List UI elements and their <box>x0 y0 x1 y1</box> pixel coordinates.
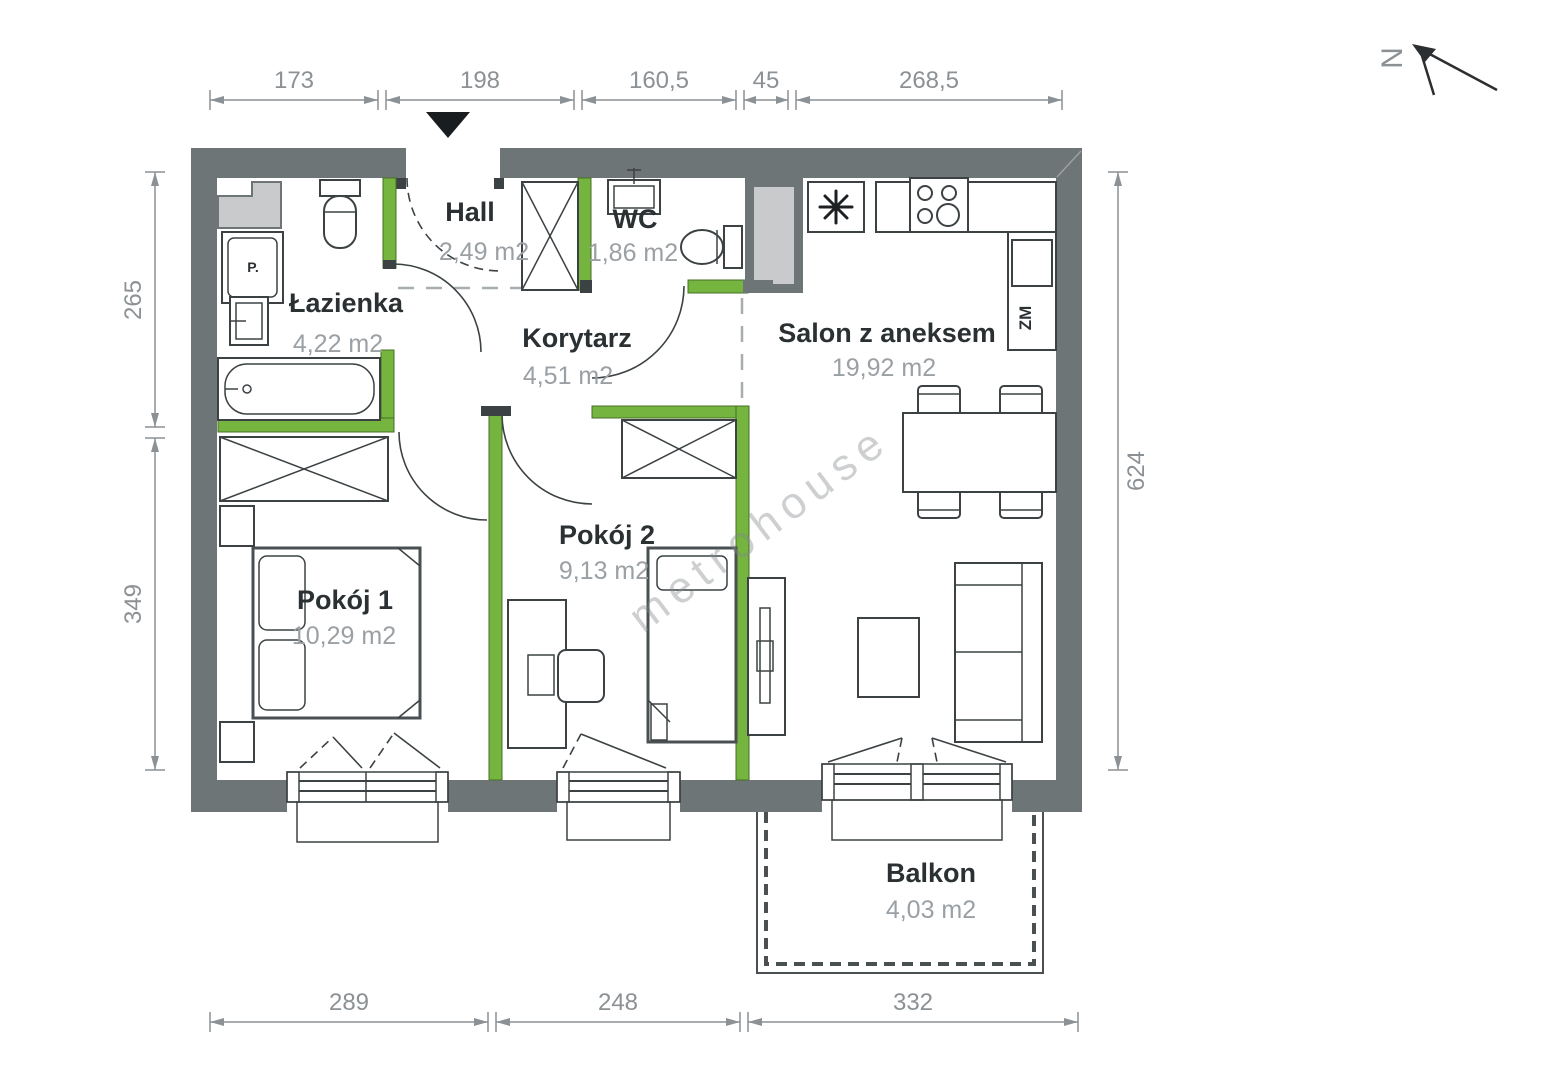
bathroom-door-swing <box>393 264 481 352</box>
room-area-korytarz: 4,51 m2 <box>523 362 613 390</box>
floor-plan: P. <box>0 0 1556 1080</box>
dim-segment: 332 <box>748 989 1078 1032</box>
kitchen-appliance <box>1012 240 1052 286</box>
room2-desk <box>508 600 604 748</box>
dim-label: 198 <box>460 67 500 94</box>
dim-segment: 624 <box>1108 172 1150 770</box>
corridor-wardrobe <box>522 182 578 290</box>
dim-label: 173 <box>274 67 314 94</box>
sofa <box>955 563 1042 742</box>
room-area-hall: 2,49 m2 <box>439 238 529 266</box>
dim-label: 624 <box>1123 451 1150 491</box>
dim-label: 160,5 <box>629 67 689 94</box>
room-name-balkon: Balkon <box>886 858 976 888</box>
room-name-wc: WC <box>613 204 658 234</box>
washer-label: P. <box>247 259 258 275</box>
desk-chair <box>558 650 604 702</box>
utility-shaft <box>743 178 803 293</box>
dim-label: 45 <box>753 67 780 94</box>
nightstand <box>220 722 254 762</box>
room-area-balkon: 4,03 m2 <box>886 896 976 924</box>
dim-segment: 289 <box>210 989 488 1032</box>
room2-wardrobe <box>622 420 736 478</box>
wc-toilet <box>681 226 742 268</box>
dishwasher-label: ZM <box>1016 306 1035 331</box>
tv-stand <box>748 578 785 735</box>
dim-segment: 198 <box>386 67 574 110</box>
bathroom-sink <box>230 297 268 345</box>
door-jamb <box>494 178 504 189</box>
room-area-lazienka: 4,22 m2 <box>293 330 383 358</box>
dim-label: 289 <box>329 989 369 1016</box>
dimensions-right: 624 <box>1108 172 1150 770</box>
dim-label: 332 <box>893 989 933 1016</box>
room1-door-swing <box>399 432 487 520</box>
dim-label: 265 <box>120 280 147 320</box>
dim-segment: 173 <box>210 67 378 110</box>
stove <box>910 178 968 232</box>
dim-segment: 268,5 <box>796 67 1062 110</box>
dim-segment: 248 <box>496 989 740 1032</box>
room1-window <box>287 733 448 842</box>
dim-segment: 265 <box>120 172 165 427</box>
dim-label: 349 <box>120 584 147 624</box>
bathroom-toilet <box>320 180 360 248</box>
room-name-hall: Hall <box>445 197 495 227</box>
dim-segment: 45 <box>744 67 788 110</box>
dim-segment: 349 <box>120 438 165 770</box>
balcony-door <box>822 738 1012 840</box>
room-area-wc: 1,86 m2 <box>588 239 678 267</box>
washing-machine: P. <box>222 232 283 303</box>
bathroom-shaft <box>218 182 281 228</box>
dining-set <box>903 386 1056 518</box>
nightstand <box>220 506 254 546</box>
room-area-pokoj1: 10,29 m2 <box>292 622 396 650</box>
entrance-arrow-icon <box>426 112 470 138</box>
north-label: N <box>1376 47 1409 69</box>
dim-label: 248 <box>598 989 638 1016</box>
dimensions-bottom: 289 248 332 <box>210 989 1078 1032</box>
room2-window <box>557 734 680 840</box>
dining-table <box>903 413 1056 492</box>
dimensions-left: 265 349 <box>120 172 165 770</box>
north-indicator: N <box>1376 44 1497 95</box>
room-name-salon: Salon z aneksem <box>778 318 996 348</box>
room-area-salon: 19,92 m2 <box>832 354 936 382</box>
room2-door-swing <box>502 414 592 504</box>
bathtub <box>218 358 380 420</box>
dimensions-top: 173 198 160,5 45 <box>210 67 1062 110</box>
balcony-railing <box>757 812 1043 973</box>
kitchen-sink <box>820 191 852 223</box>
dim-label: 268,5 <box>899 67 959 94</box>
room-name-lazienka: Łazienka <box>289 288 404 318</box>
room-area-pokoj2: 9,13 m2 <box>559 557 649 585</box>
room-name-pokoj1: Pokój 1 <box>297 585 393 615</box>
room-name-pokoj2: Pokój 2 <box>559 520 655 550</box>
dim-segment: 160,5 <box>582 67 736 110</box>
coffee-table <box>858 618 919 697</box>
door-jamb <box>396 178 406 189</box>
room-name-korytarz: Korytarz <box>522 323 632 353</box>
room1-wardrobe <box>220 437 388 501</box>
